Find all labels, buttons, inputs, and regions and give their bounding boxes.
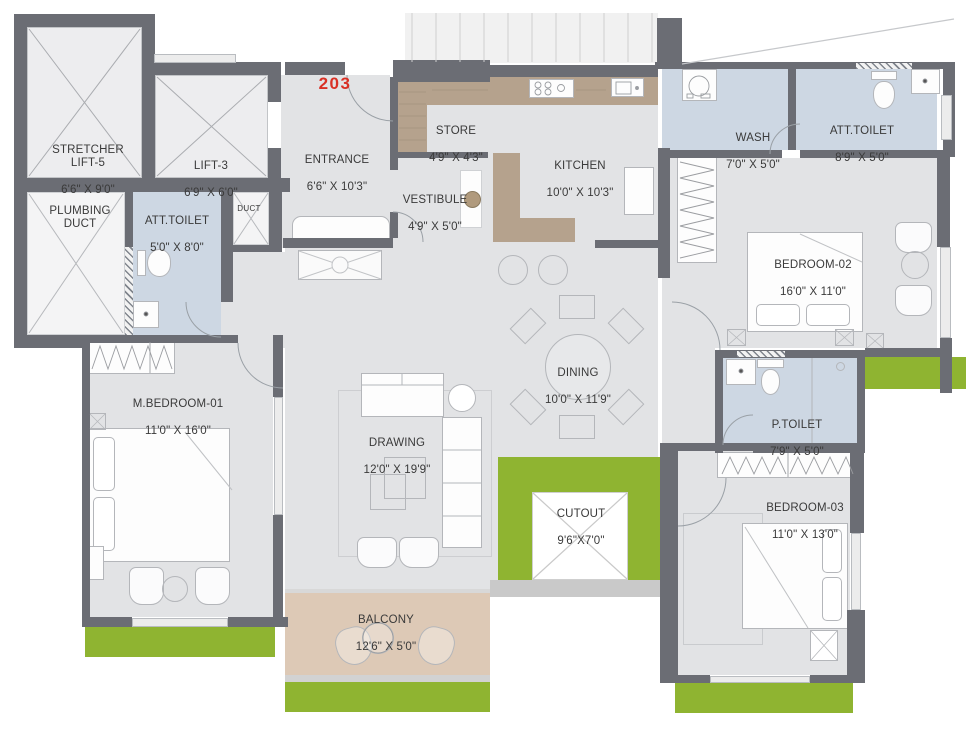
planter-below-balcony	[285, 682, 490, 712]
room-name: LIFT-3	[184, 160, 238, 174]
room-label-cutout: CUTOUT 9'6"X7'0"	[557, 494, 606, 562]
wall	[393, 60, 490, 82]
room-name: VESTIBULE	[403, 194, 468, 208]
cabinet-icon	[442, 417, 482, 548]
store-shelf-column	[398, 78, 427, 153]
room-name: DUCT	[237, 204, 260, 213]
room-dims: 9'6"X7'0"	[557, 535, 606, 549]
window-master-right	[274, 397, 283, 515]
wardrobe-icon	[89, 341, 175, 374]
room-label-plumbing-duct: PLUMBING DUCT	[49, 191, 110, 245]
bedside-table-icon	[89, 413, 106, 430]
console-icon	[298, 250, 382, 280]
room-label-drawing: DRAWING 12'0" X 19'9"	[364, 423, 431, 491]
window-bedroom-03-right	[851, 533, 861, 610]
room-dims: 7'9" X 5'0"	[770, 446, 824, 460]
room-dims: 11'0" X 13'0"	[766, 529, 844, 543]
wall	[14, 335, 90, 348]
room-name: ENTRANCE	[305, 154, 369, 168]
sink-icon	[726, 359, 756, 385]
kitchen-sink-icon	[611, 78, 644, 97]
ledge-below-cutout	[490, 580, 666, 597]
wall	[273, 515, 283, 627]
kitchen-platform-foot	[493, 218, 575, 242]
room-dims: 11'0" X 16'0"	[133, 425, 224, 439]
room-dims: 4'9" X 5'0"	[403, 221, 468, 235]
room-dims: 6'6" X 10'3"	[305, 181, 369, 195]
chair-icon	[895, 285, 932, 316]
bedside-table-icon	[727, 329, 746, 346]
opening-above-lift-3	[154, 54, 236, 63]
side-table-icon	[162, 576, 188, 602]
wall	[847, 610, 865, 683]
bedside-table-icon	[835, 329, 854, 346]
room-name: PLUMBING DUCT	[49, 205, 110, 232]
chair-icon	[559, 295, 595, 319]
wall	[850, 451, 864, 533]
sink-icon	[133, 301, 159, 328]
room-name: STORE	[429, 125, 483, 139]
room-name: BALCONY	[356, 614, 416, 628]
wall	[390, 212, 398, 238]
wall	[283, 238, 393, 248]
wall	[268, 75, 281, 102]
stove-icon	[529, 79, 574, 98]
room-name: ATT.TOILET	[145, 215, 209, 229]
room-dims: 4'9" X 4'3"	[429, 152, 483, 166]
wall	[657, 18, 682, 67]
room-dims: 7'0" X 5'0"	[726, 159, 780, 173]
wall	[233, 245, 269, 252]
vent-hatch	[125, 247, 133, 335]
room-name: BEDROOM-03	[766, 502, 844, 516]
room-label-store: STORE 4'9" X 4'3"	[429, 111, 483, 179]
room-label-balcony: BALCONY 12'6" X 5'0"	[356, 600, 416, 668]
wall	[14, 14, 154, 27]
room-label-dining: DINING 10'0" X 11'9"	[545, 353, 611, 421]
wardrobe-icon	[677, 157, 717, 263]
window-bedroom-03-bottom	[710, 676, 810, 683]
window-att-toilet-2-right	[941, 95, 952, 140]
wall	[82, 617, 132, 627]
room-dims: 12'0" X 19'9"	[364, 464, 431, 478]
pillow	[822, 577, 842, 621]
wall	[715, 350, 723, 453]
wall	[663, 675, 710, 683]
room-dims: 6'9" X 6'0"	[184, 187, 238, 201]
room-name: WASH	[726, 132, 780, 146]
stool-icon	[498, 255, 528, 285]
room-label-att-toilet-master: ATT.TOILET 5'0" X 8'0"	[145, 201, 209, 269]
room-name: P.TOILET	[770, 419, 824, 433]
wall	[155, 62, 281, 75]
wall	[390, 77, 398, 170]
room-label-wash: WASH 7'0" X 5'0"	[726, 118, 780, 186]
room-label-p-toilet: P.TOILET 7'9" X 5'0"	[770, 405, 824, 473]
room-name: DRAWING	[364, 437, 431, 451]
unit-number: 203	[319, 74, 352, 94]
room-dims: 16'0" X 11'0"	[774, 286, 852, 300]
room-label-kitchen: KITCHEN 10'0" X 10'3"	[547, 146, 614, 214]
room-label-duct: DUCT	[237, 195, 260, 222]
wall	[595, 240, 658, 248]
chair-icon	[357, 537, 397, 568]
wall	[937, 155, 950, 247]
wall	[940, 338, 952, 393]
room-name: CUTOUT	[557, 508, 606, 522]
wall	[788, 68, 796, 150]
room-name: DINING	[545, 367, 611, 381]
toilet-tank-icon	[871, 71, 897, 80]
balcony-parapet	[285, 675, 490, 682]
room-label-bedroom-03: BEDROOM-03 11'0" X 13'0"	[766, 488, 844, 556]
room-dims: 10'0" X 10'3"	[547, 187, 614, 201]
fridge-icon	[624, 167, 654, 215]
room-dims: 5'0" X 8'0"	[145, 242, 209, 256]
window-bedroom-02-right	[940, 247, 951, 338]
stair-lobby	[405, 13, 658, 63]
wall	[82, 343, 90, 624]
sink-icon	[911, 69, 940, 94]
vent-hatch	[856, 63, 912, 69]
toilet-icon	[761, 369, 780, 395]
toilet-tank-icon	[757, 359, 784, 368]
wall	[142, 14, 155, 192]
room-label-m-bedroom-01: M.BEDROOM-01 11'0" X 16'0"	[133, 384, 224, 452]
chair-icon	[399, 537, 439, 568]
terrace-line	[682, 19, 954, 64]
wall	[865, 348, 940, 357]
basin-counter-icon	[866, 333, 884, 349]
chair-icon	[129, 567, 164, 605]
sofa-icon	[361, 373, 444, 417]
wall	[269, 192, 282, 252]
room-label-entrance: ENTRANCE 6'6" X 10'3"	[305, 140, 369, 208]
shower-icon	[836, 362, 845, 371]
wall	[660, 443, 678, 683]
room-name: KITCHEN	[547, 160, 614, 174]
room-label-vestibule: VESTIBULE 4'9" X 5'0"	[403, 180, 468, 248]
room-label-bedroom-02: BEDROOM-02 16'0" X 11'0"	[774, 245, 852, 313]
floor-plan: 203 STRETCHER LIFT-5 6'6" X 9'0" LIFT-3 …	[0, 0, 966, 735]
room-name: M.BEDROOM-01	[133, 398, 224, 412]
room-dims: 8'9" X 5'0"	[830, 152, 894, 166]
chair-icon	[195, 567, 230, 605]
pillow	[93, 497, 115, 551]
washing-machine-icon	[682, 69, 717, 101]
planter-below-bedroom-03	[675, 683, 853, 713]
room-name: ATT.TOILET	[830, 125, 894, 139]
wall	[658, 148, 670, 278]
dresser-icon	[810, 630, 838, 661]
wall	[857, 350, 865, 453]
side-table-icon	[901, 251, 929, 279]
vent-hatch	[737, 351, 785, 357]
toilet-icon	[873, 81, 895, 109]
room-dims: 12'6" X 5'0"	[356, 641, 416, 655]
room-label-att-toilet-2: ATT.TOILET 8'9" X 5'0"	[830, 111, 894, 179]
wall	[810, 675, 860, 683]
side-table-icon	[448, 384, 476, 412]
window-master-bottom	[132, 618, 228, 627]
wall	[273, 335, 283, 397]
stool-icon	[538, 255, 568, 285]
balcony-threshold	[285, 589, 490, 593]
room-name: BEDROOM-02	[774, 259, 852, 273]
floor-passage	[662, 340, 715, 448]
chair-icon	[895, 222, 932, 253]
wall	[90, 335, 238, 343]
wall	[490, 65, 658, 77]
room-name: STRETCHER LIFT-5	[52, 144, 124, 171]
planter-left-bottom	[85, 627, 275, 657]
pillow	[93, 437, 115, 491]
room-dims: 10'0" X 11'9"	[545, 394, 611, 408]
